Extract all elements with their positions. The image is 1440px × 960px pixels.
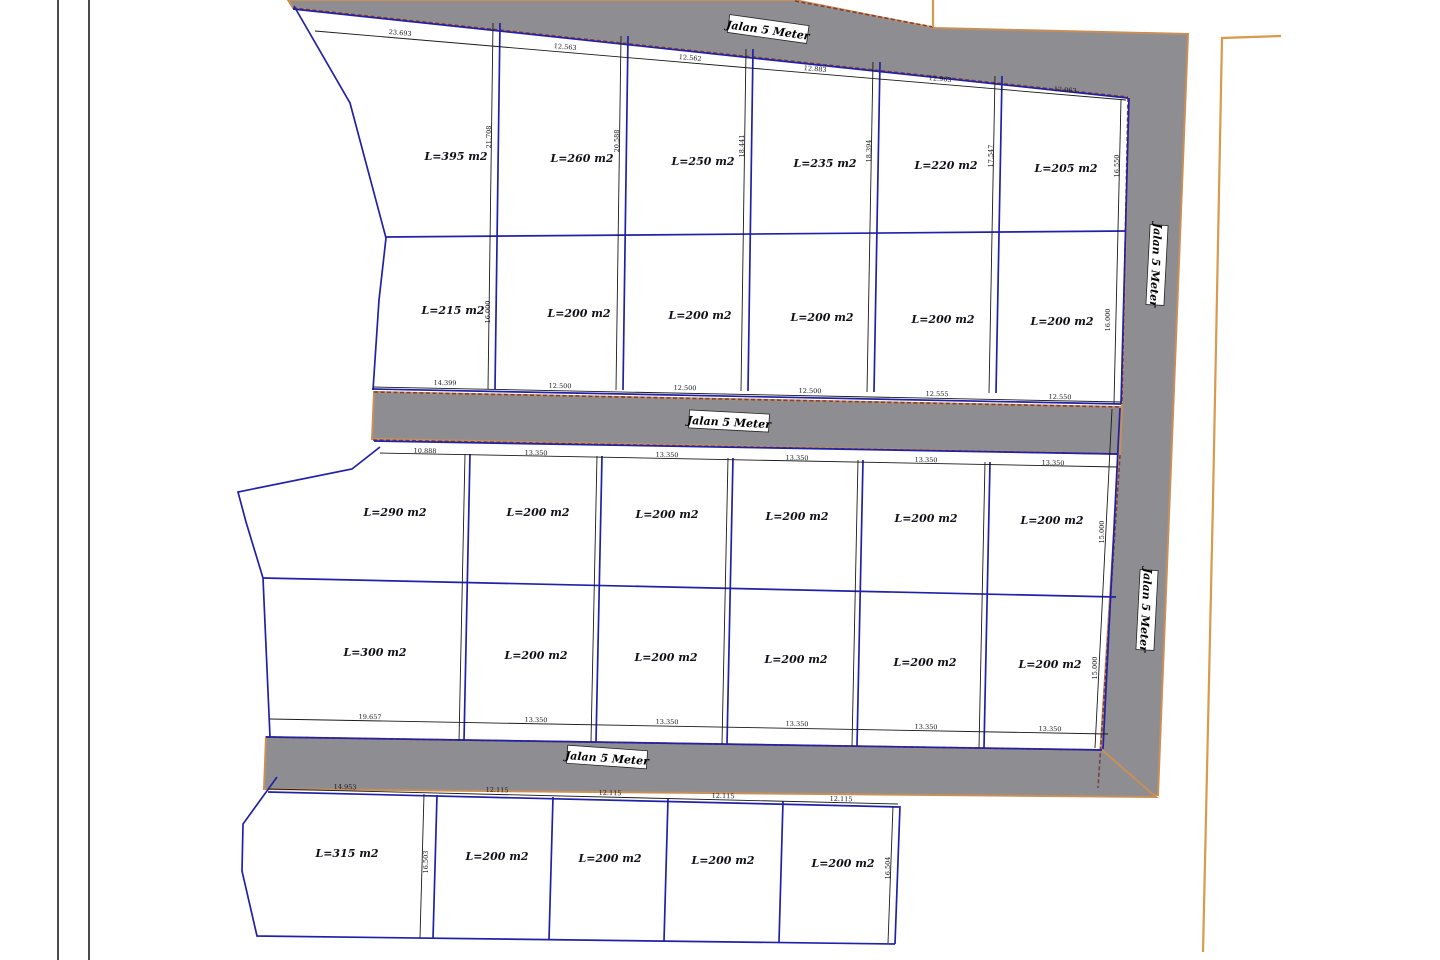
parcel-boundary-lines (238, 6, 1129, 944)
dimension-label: 12.963 (1053, 85, 1076, 95)
plot-label: L=200 m2 (763, 653, 827, 666)
plot-label: L=200 m2 (789, 311, 853, 324)
dimension-label: 12.550 (1049, 393, 1072, 401)
dimension-label: 16.000 (484, 301, 492, 324)
plot-label: L=200 m2 (893, 512, 957, 525)
plot-label: L=200 m2 (892, 656, 956, 669)
dimension-label: 13.350 (525, 716, 548, 724)
dimension-label: 12.555 (926, 390, 949, 398)
bottom-road (264, 737, 1156, 797)
dimension-label: 16.000 (1104, 309, 1112, 332)
plot-label: L=200 m2 (1019, 514, 1083, 527)
plot-label: L=200 m2 (764, 510, 828, 523)
plot-label: L=200 m2 (505, 506, 569, 519)
dimension-label: 12.115 (830, 795, 853, 804)
dimension-label: 13.350 (786, 720, 809, 728)
plot-label: L=200 m2 (546, 307, 610, 320)
dimension-label: 13.350 (915, 723, 938, 731)
plot-label: L=395 m2 (423, 150, 487, 163)
plot-label: L=315 m2 (314, 847, 378, 860)
plot-label: L=215 m2 (420, 304, 484, 317)
dimension-label: 12.115 (599, 789, 622, 798)
dimension-label: 12.562 (678, 53, 701, 63)
dimension-label: 16.550 (1113, 155, 1121, 178)
plot-label: L=235 m2 (792, 157, 856, 170)
plot-label: L=200 m2 (464, 850, 528, 863)
plot-label: L=205 m2 (1033, 162, 1097, 175)
dimension-label: 12.115 (712, 792, 735, 801)
dimension-label: 15.000 (1091, 657, 1099, 680)
dimension-label: 13.350 (656, 451, 679, 459)
plot-label: L=220 m2 (913, 159, 977, 172)
plot-label: L=200 m2 (910, 313, 974, 326)
dimension-label: 18.394 (865, 140, 873, 163)
dimension-label: 23.693 (388, 28, 411, 38)
dimension-label: 12.115 (486, 786, 509, 795)
dimension-label: 13.350 (525, 449, 548, 457)
dimension-label: 13.350 (1042, 459, 1065, 467)
dimension-label: 16.504 (884, 857, 892, 880)
plot-label: L=200 m2 (1029, 315, 1093, 328)
dimension-label: 17.547 (987, 145, 995, 168)
dimension-label: 12.500 (799, 387, 822, 395)
plot-label: L=250 m2 (670, 155, 734, 168)
site-plan-svg: L=395 m2 L=260 m2 L=250 m2 L=235 m2 L=22… (0, 0, 1440, 960)
plot-label: L=300 m2 (342, 646, 406, 659)
plot-label: L=200 m2 (810, 857, 874, 870)
dimension-label: 12.500 (549, 382, 572, 390)
plot-label: L=200 m2 (1017, 658, 1081, 671)
plot-label: L=200 m2 (690, 854, 754, 867)
plot-label: L=260 m2 (549, 152, 613, 165)
dimension-label: 19.657 (359, 713, 382, 721)
dimension-label: 10.888 (414, 447, 437, 455)
plot-label: L=200 m2 (633, 651, 697, 664)
dimension-label: 13.350 (786, 454, 809, 462)
plot-label: L=290 m2 (362, 506, 426, 519)
dimension-label: 20.588 (613, 130, 621, 153)
dimension-label: 12.563 (553, 42, 576, 52)
dimension-label: 21.708 (485, 126, 493, 149)
dimension-label: 12.963 (928, 74, 951, 84)
dimension-label: 13.350 (1039, 725, 1062, 733)
dimension-label: 12.500 (674, 384, 697, 392)
plot-label: L=200 m2 (667, 309, 731, 322)
plot-label: L=200 m2 (577, 852, 641, 865)
plot-label: L=200 m2 (503, 649, 567, 662)
dimension-label: 14.953 (334, 783, 357, 792)
site-plan-drawing: L=395 m2 L=260 m2 L=250 m2 L=235 m2 L=22… (0, 0, 1440, 960)
dimension-label: 13.350 (656, 718, 679, 726)
plot-label: L=200 m2 (634, 508, 698, 521)
dimension-label: 18.441 (738, 135, 746, 158)
dimension-label: 14.399 (434, 379, 457, 387)
outer-boundary-orange-line (933, 0, 1281, 952)
dimension-label: 15.000 (1098, 521, 1106, 544)
dimension-label: 16.503 (422, 851, 430, 874)
dimension-label: 13.350 (915, 456, 938, 464)
